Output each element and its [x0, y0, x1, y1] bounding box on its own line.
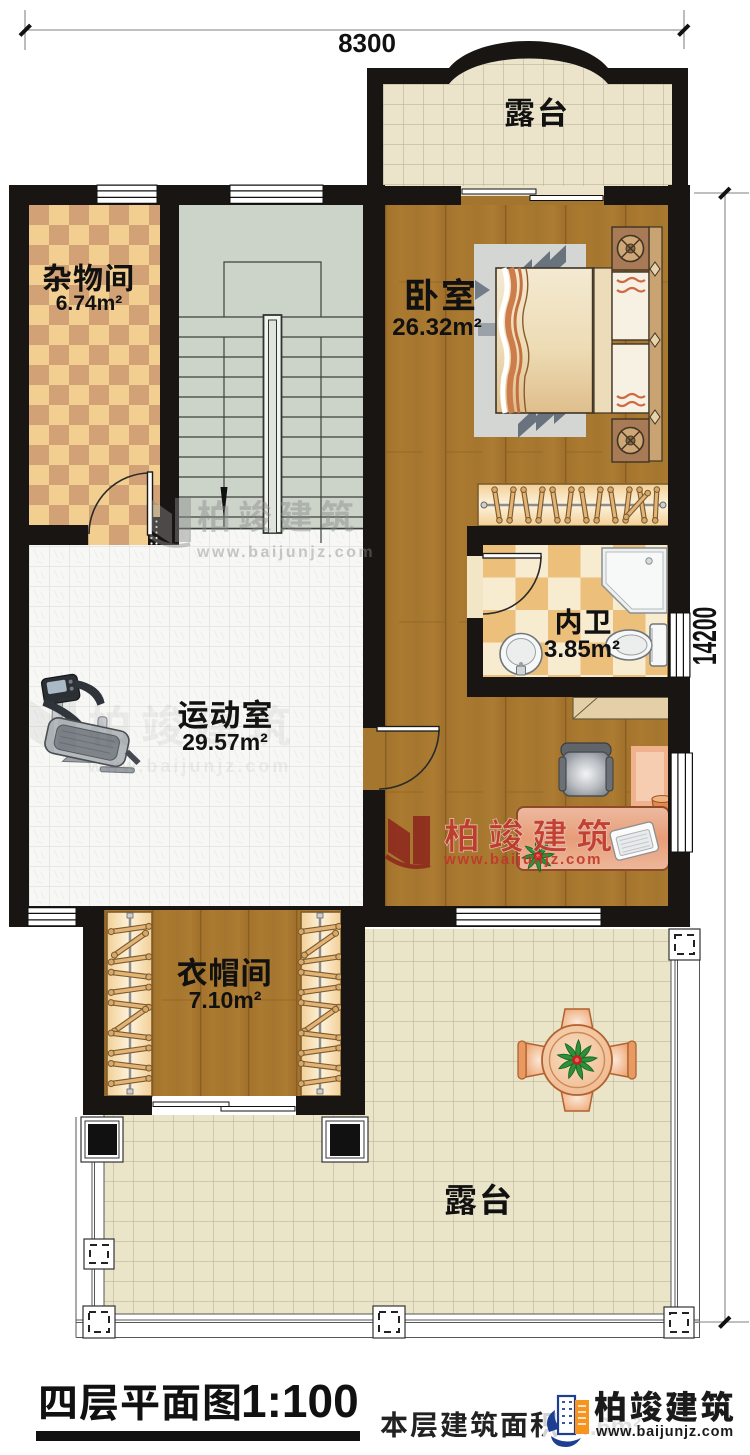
svg-text:www.baijunjz.com: www.baijunjz.com	[595, 1424, 734, 1440]
svg-text:1:100: 1:100	[241, 1375, 359, 1427]
svg-text:3.85m²: 3.85m²	[544, 636, 620, 663]
svg-text:www.baijunjz.com: www.baijunjz.com	[87, 756, 291, 776]
svg-text:www.baijunjz.com: www.baijunjz.com	[443, 851, 602, 868]
svg-text:6.74m²: 6.74m²	[56, 292, 123, 315]
svg-text:14200: 14200	[686, 607, 723, 665]
svg-text:26.32m²: 26.32m²	[392, 314, 481, 341]
svg-text:8300: 8300	[338, 28, 396, 58]
svg-text:www.baijunjz.com: www.baijunjz.com	[196, 544, 375, 561]
svg-text:7.10m²: 7.10m²	[189, 987, 262, 1013]
